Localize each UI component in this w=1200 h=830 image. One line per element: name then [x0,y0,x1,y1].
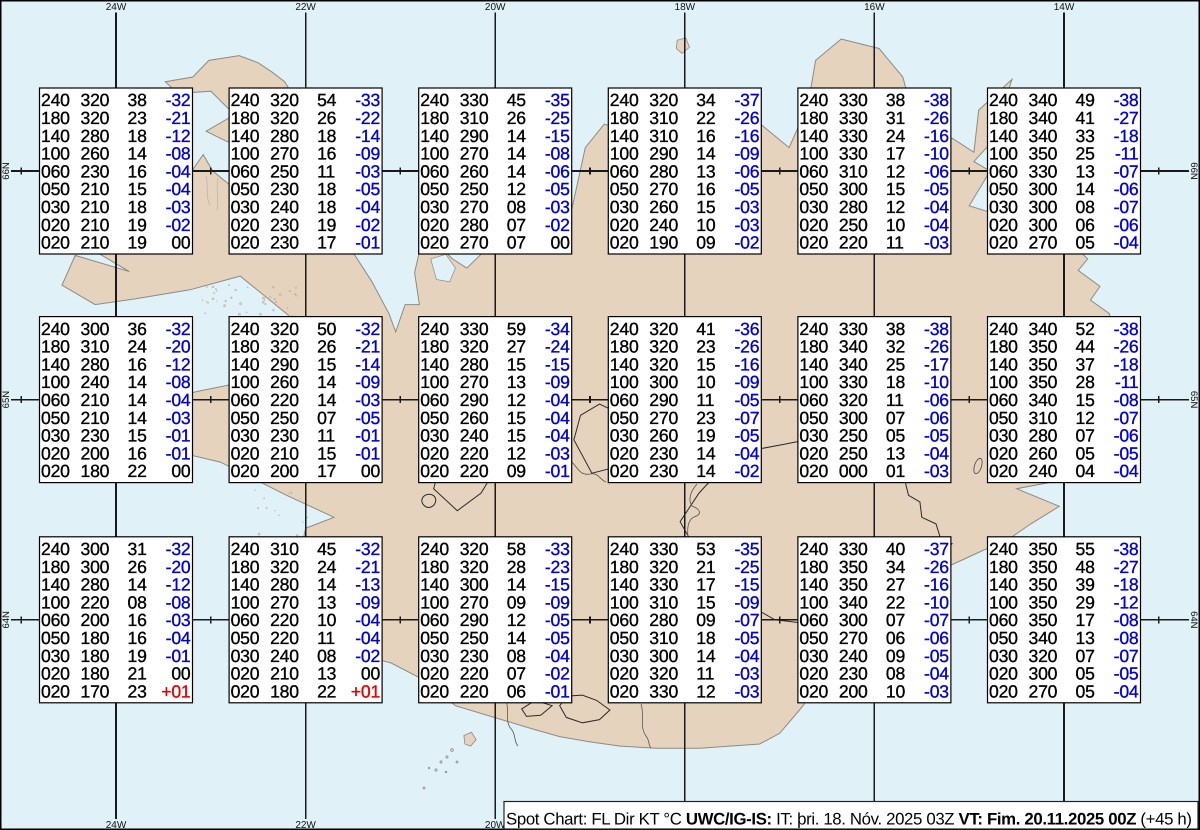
svg-text:04: 04 [1076,461,1096,481]
svg-text:-01: -01 [545,681,570,701]
svg-text:020: 020 [989,233,1018,253]
svg-text:-03: -03 [924,461,949,481]
svg-text:+01: +01 [161,681,190,701]
svg-text:020: 020 [41,461,70,481]
svg-text:00: 00 [551,233,571,253]
svg-text:240: 240 [1029,461,1058,481]
svg-text:180: 180 [270,681,299,701]
svg-text:020: 020 [41,681,70,701]
svg-text:020: 020 [231,461,260,481]
svg-text:170: 170 [81,681,110,701]
svg-text:230: 230 [270,233,299,253]
svg-text:22: 22 [128,461,147,481]
svg-text:020: 020 [610,461,639,481]
svg-text:09: 09 [696,233,715,253]
svg-text:220: 220 [460,461,489,481]
svg-text:05: 05 [1076,681,1096,701]
svg-text:65N: 65N [1,391,12,409]
svg-text:230: 230 [649,461,678,481]
svg-text:020: 020 [799,461,828,481]
svg-text:18W: 18W [675,2,696,13]
svg-text:22W: 22W [295,2,316,13]
svg-text:17: 17 [317,461,336,481]
svg-text:270: 270 [1029,681,1058,701]
svg-text:06: 06 [507,681,527,701]
svg-text:01: 01 [886,461,905,481]
svg-text:270: 270 [1029,233,1058,253]
svg-text:180: 180 [81,461,110,481]
svg-text:-04: -04 [1114,233,1139,253]
svg-text:200: 200 [270,461,299,481]
svg-text:10: 10 [886,681,906,701]
svg-text:020: 020 [610,233,639,253]
svg-text:020: 020 [231,681,260,701]
svg-text:+01: +01 [351,681,380,701]
svg-text:16W: 16W [864,2,885,13]
svg-text:330: 330 [649,681,678,701]
svg-text:11: 11 [886,233,904,253]
svg-text:09: 09 [507,461,526,481]
svg-text:65N: 65N [1188,391,1199,409]
svg-text:-03: -03 [924,233,949,253]
svg-text:12: 12 [696,681,715,701]
svg-text:64N: 64N [1188,611,1199,629]
svg-text:020: 020 [989,461,1018,481]
svg-text:17: 17 [317,233,336,253]
svg-text:00: 00 [171,233,191,253]
svg-text:020: 020 [610,681,639,701]
svg-text:20W: 20W [485,2,506,13]
svg-text:220: 220 [460,681,489,701]
svg-text:22: 22 [317,681,336,701]
svg-text:190: 190 [649,233,678,253]
svg-text:270: 270 [460,233,489,253]
svg-text:23: 23 [128,681,148,701]
svg-text:-03: -03 [734,681,759,701]
svg-text:14: 14 [696,461,716,481]
svg-text:19: 19 [128,233,147,253]
svg-text:020: 020 [41,233,70,253]
svg-text:020: 020 [989,681,1018,701]
svg-text:05: 05 [1076,233,1096,253]
svg-text:-02: -02 [734,233,759,253]
svg-text:Spot Chart: FL Dir KT °C UWC/I: Spot Chart: FL Dir KT °C UWC/IG-IS: IT: … [506,810,1192,829]
svg-text:66N: 66N [1,162,12,180]
svg-text:020: 020 [231,233,260,253]
svg-text:-01: -01 [545,461,570,481]
svg-text:07: 07 [507,233,526,253]
svg-text:14W: 14W [1054,2,1075,13]
svg-text:210: 210 [81,233,110,253]
svg-text:24W: 24W [106,2,127,13]
svg-text:200: 200 [839,681,868,701]
svg-text:020: 020 [420,233,449,253]
svg-text:000: 000 [839,461,868,481]
svg-text:64N: 64N [1,611,12,629]
svg-text:-01: -01 [355,233,380,253]
svg-text:00: 00 [171,461,191,481]
svg-text:-04: -04 [1114,461,1139,481]
svg-text:020: 020 [799,233,828,253]
svg-text:020: 020 [420,461,449,481]
svg-text:220: 220 [839,233,868,253]
svg-text:020: 020 [799,681,828,701]
svg-text:-04: -04 [1114,681,1139,701]
svg-text:66N: 66N [1188,162,1199,180]
svg-text:020: 020 [420,681,449,701]
svg-text:00: 00 [361,461,381,481]
svg-text:-02: -02 [734,461,759,481]
svg-text:-03: -03 [924,681,949,701]
